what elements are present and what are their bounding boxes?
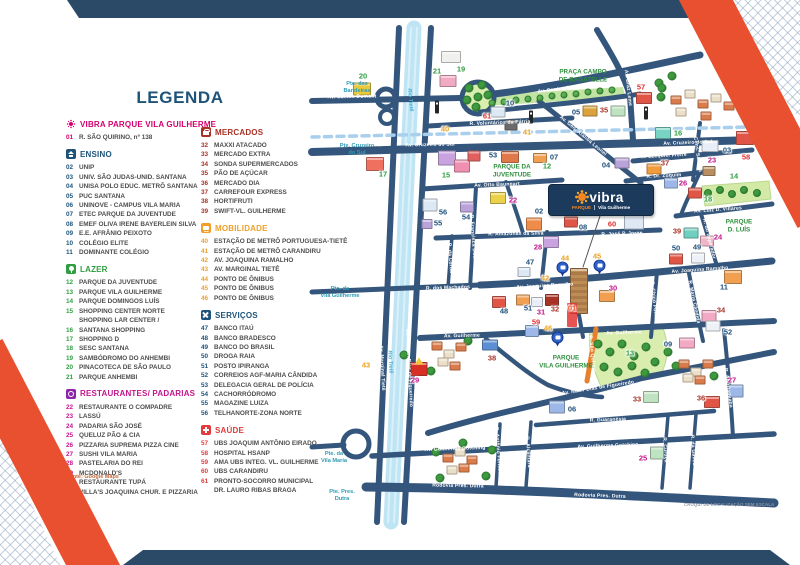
road-label: Av. Guilherme Gotching <box>424 445 485 453</box>
tree-icon <box>484 91 493 100</box>
legend-item-label: PONTO DE ÔNIBUS <box>214 284 274 293</box>
legend-item-label: HORTIFRUTI <box>214 197 253 206</box>
building-icon <box>501 151 519 163</box>
map-marker-20: 20 <box>359 72 367 81</box>
map-marker-45: 45 <box>593 252 601 261</box>
legend-item-label: QUELUZ PÃO & CIA <box>79 431 140 440</box>
legend-item-label: COLÉGIO ELITE <box>79 239 128 248</box>
tree-icon <box>657 93 666 102</box>
map-marker-37: 37 <box>661 159 669 168</box>
map-marker-19: 19 <box>457 65 465 74</box>
legend-item-number: 01 <box>66 133 79 142</box>
road-label: Av. Guilherme <box>444 333 480 340</box>
road-label: R. Alcântara <box>524 436 532 468</box>
map-marker-16: 16 <box>674 129 682 138</box>
legend-item-label: AV. JOAQUINA RAMALHO <box>214 256 293 265</box>
legend-item-number: 47 <box>201 324 214 333</box>
legend-item-number: 55 <box>201 399 214 408</box>
park-label: PARQUE VILA GUILHERME <box>539 355 593 370</box>
legend-item-label: BANCO BRADESCO <box>214 334 276 343</box>
legend-item-number: 22 <box>66 403 79 412</box>
legend-item-label: AV. MARGINAL TIETÊ <box>214 265 280 274</box>
legend-item-number: 38 <box>201 197 214 206</box>
tree-icon <box>597 88 604 95</box>
map-marker-28: 28 <box>534 243 542 252</box>
legend-item-number: 50 <box>201 352 214 361</box>
legend-item-label: E.E. AFRÂNIO PEIXOTO <box>79 229 152 238</box>
legend-item-number: 02 <box>66 163 79 172</box>
map-scale-note: CROQUI DE LOCALIZAÇÃO SEM ESCALA <box>684 502 774 507</box>
legend-item: 60UBS CARANDIRU <box>201 467 351 476</box>
map-marker-31: 31 <box>537 308 545 317</box>
legend-item-label: PUC SANTANA <box>79 192 125 201</box>
road-label: R. dos Machados <box>426 284 470 292</box>
building-icon <box>636 92 652 104</box>
tree-icon <box>716 186 724 194</box>
building-icon <box>518 267 531 277</box>
legend-item-number: 11 <box>66 248 79 257</box>
building-icon <box>543 236 559 248</box>
house-icon <box>432 342 443 351</box>
house-icon <box>711 94 722 103</box>
map-marker-26: 26 <box>679 179 687 188</box>
legend-item-label: R. SÃO QUIRINO, nº 138 <box>79 133 152 142</box>
map-marker-27: 27 <box>728 376 736 385</box>
legend-item: 50DROGA RAIA <box>201 352 351 361</box>
legend-item-label: PRONTO-SOCORRO MUNICIPAL <box>214 477 313 486</box>
tree-icon <box>664 348 673 357</box>
legend-item-label: AMA UBS INTEG. VL. GUILHERME <box>214 458 319 467</box>
legend-item-number: 09 <box>66 229 79 238</box>
legend-item: 59AMA UBS INTEG. VL. GUILHERME <box>201 458 351 467</box>
legend-item-label: PONTO DE ÔNIBUS <box>214 275 274 284</box>
map-marker-32: 32 <box>551 305 559 314</box>
legend-item-number: 18 <box>66 344 79 353</box>
legend-section-title: MOBILIDADE <box>215 224 268 233</box>
legend-item: 46PONTO DE ÔNIBUS <box>201 294 351 303</box>
map-marker-54: 54 <box>462 213 470 222</box>
legend-item-number: 42 <box>201 256 214 265</box>
legend-item-number: 20 <box>66 363 79 372</box>
map-marker-11: 11 <box>720 283 728 292</box>
legend-item-label: PARQUE ANHEMBI <box>79 373 137 382</box>
bus-stop-icon <box>594 260 605 275</box>
tree-icon <box>585 89 592 96</box>
tree-icon <box>463 96 472 105</box>
legend-section-saude: SAÚDE57UBS JOAQUIM ANTÔNIO EIRADO58HOSPI… <box>201 425 351 495</box>
legend-item-number: 07 <box>66 210 79 219</box>
legend-item: 34SONDA SUPERMERCADOS <box>201 160 351 169</box>
building-icon <box>583 106 598 117</box>
tree-icon <box>728 190 736 198</box>
legend-item-label: RESTAURANTE O COMPADRE <box>79 403 172 412</box>
map-marker-57: 57 <box>637 83 645 92</box>
legend-item-number: 58 <box>201 449 214 458</box>
building-icon <box>526 218 542 231</box>
legend-item-number: 39 <box>201 207 214 216</box>
legend-item-label: PÃO DE AÇÚCAR <box>214 169 268 178</box>
legend-item-label: SESC SANTANA <box>79 344 129 353</box>
legend-item-label: PARQUE VILA GUILHERME <box>79 288 162 297</box>
road-label: Av. Marginal Tietê <box>378 345 386 391</box>
building-icon <box>684 228 699 239</box>
legend-item-number: 08 <box>66 220 79 229</box>
legend-item-label: UNISA POLO EDUC. METRÔ SANTANA <box>79 182 198 191</box>
legend-item-number: 52 <box>201 371 214 380</box>
vibra-sub-parque: PARQUE <box>572 205 595 210</box>
legend-section-heading: SERVIÇOS <box>201 310 351 320</box>
legend-item-label: DELEGACIA GERAL DE POLÍCIA <box>214 381 314 390</box>
legend-item-number: 26 <box>66 441 79 450</box>
tree-icon <box>537 95 544 102</box>
legend-item-label: CARREFOUR EXPRESS <box>214 188 287 197</box>
map-marker-44: 44 <box>561 254 569 263</box>
house-icon <box>698 100 709 109</box>
legend-item-label: CACHORRÓDROMO <box>214 390 276 399</box>
legend-item-number: 27 <box>66 450 79 459</box>
tree-icon <box>642 343 651 352</box>
tree-icon <box>609 87 616 94</box>
legend-item: 61PRONTO-SOCORRO MUNICIPAL <box>201 477 351 486</box>
map-marker-01: 01 <box>568 304 576 313</box>
legend-section-title: ENSINO <box>80 150 112 159</box>
building-icon <box>422 219 433 229</box>
road-label: Av. Joaquina Ramalho <box>671 265 728 275</box>
house-icon <box>676 108 687 117</box>
legend-item-number: 14 <box>66 297 79 306</box>
bus-stop-icon <box>552 332 563 347</box>
map-marker-33: 33 <box>633 395 641 404</box>
road-label: Rodovia Pres. Dutra <box>574 492 626 500</box>
legend-item-continuation: DR. LAURO RIBAS BRAGA <box>201 486 351 495</box>
legend-item-label: PINACOTECA DE SÃO PAULO <box>79 363 171 372</box>
legend-item-number: 48 <box>201 334 214 343</box>
legend-item: 45PONTO DE ÔNIBUS <box>201 284 351 293</box>
health-cross-icon <box>201 425 211 435</box>
tree-icon <box>525 96 532 103</box>
map-marker-40: 40 <box>441 125 449 134</box>
building-icon <box>703 166 716 176</box>
road-label: Av. Luiz D. Villares <box>694 205 742 214</box>
map-marker-42: 42 <box>541 274 549 283</box>
tree-icon <box>614 368 623 377</box>
road-label: R. José P. Jorge <box>601 230 643 237</box>
legend-item-label: UBS CARANDIRU <box>214 467 268 476</box>
map-marker-15: 15 <box>442 171 450 180</box>
legend-item-number: 36 <box>201 179 214 188</box>
park-label: PARQUE DA JUVENTUDE <box>493 164 531 179</box>
legend-column-right: MERCADOS32MAXXI ATACADO33MERCADO EXTRA34… <box>201 127 351 496</box>
legend-item: 54CACHORRÓDROMO <box>201 390 351 399</box>
map-marker-02: 02 <box>535 207 543 216</box>
road-label: Av. Gen. Ataliba Leonel <box>558 115 608 158</box>
tree-icon <box>474 93 483 102</box>
map-marker-53: 53 <box>489 151 497 160</box>
house-icon <box>701 112 712 121</box>
tree-icon <box>594 340 603 349</box>
legend-item-number: 46 <box>201 294 214 303</box>
legend-item-label: PARQUE DOMINGOS LUÍS <box>79 297 159 306</box>
metro-station-icon <box>435 101 439 114</box>
legend-item-number: 06 <box>66 201 79 210</box>
legend-item-label: PASTELARIA DO REI <box>79 459 143 468</box>
road-label: Av. Guilherme Gotching <box>577 442 638 450</box>
map-marker-08: 08 <box>579 223 587 232</box>
legend-item-label: ESTAÇÃO DE METRÔ CARANDIRU <box>214 247 321 256</box>
legend-item-label: HOSPITAL HSANP <box>214 449 270 458</box>
legend-item-label: SHOPPING LAR CENTER / <box>79 316 159 325</box>
map-marker-05: 05 <box>572 108 580 117</box>
legend-item-number: 34 <box>201 160 214 169</box>
map-marker-38: 38 <box>488 354 496 363</box>
legend-item-number: 17 <box>66 335 79 344</box>
legend-item: 43AV. MARGINAL TIETÊ <box>201 265 351 274</box>
legend-item-number: 24 <box>66 422 79 431</box>
legend-item-label: UNIP <box>79 163 94 172</box>
legend-item-number: 04 <box>66 182 79 191</box>
legend-item-label: LASSÚ <box>79 412 101 421</box>
road-label: Rodovia Pres. Dutra <box>432 483 484 490</box>
vibra-brand: vibra <box>589 191 623 204</box>
road-label: R. Chico Pontes <box>649 281 659 323</box>
map-marker-07: 07 <box>550 153 558 162</box>
map-marker-46: 46 <box>544 324 552 333</box>
building-icon <box>611 106 626 117</box>
tree-icon <box>753 189 761 197</box>
legend-item: 47BANCO ITAÚ <box>201 324 351 333</box>
legend-item-number: 40 <box>201 237 214 246</box>
building-icon <box>664 178 678 189</box>
legend-item-label: UNINOVE - CAMPUS VILA MARIA <box>79 201 180 210</box>
legend-item-label: BANCO ITAÚ <box>214 324 254 333</box>
legend-item-number: 15 <box>66 307 79 316</box>
road-label: R. Voluntários da Pátria <box>469 119 530 127</box>
building-icon <box>549 401 565 414</box>
legend-item-label: SANTANA SHOPPING <box>79 326 145 335</box>
house-icon <box>683 374 694 383</box>
legend-item: 32MAXXI ATACADO <box>201 141 351 150</box>
legend-item-number: 45 <box>201 284 214 293</box>
map-marker-43: 43 <box>362 361 370 370</box>
house-icon <box>447 466 458 475</box>
legend-item: 42AV. JOAQUINA RAMALHO <box>201 256 351 265</box>
legend-item-label: SHOPPING D <box>79 335 119 344</box>
legend-section-mobilidade: MOBILIDADE40ESTAÇÃO DE METRÔ PORTUGUESA-… <box>201 223 351 303</box>
map-marker-04: 04 <box>602 161 610 170</box>
tree-icon <box>561 92 568 99</box>
tree-icon <box>478 81 487 90</box>
road-label: R. Amazonas da Silva <box>488 231 544 238</box>
vibra-map-logo: vibra PARQUE Vila Guilherme <box>548 184 654 216</box>
vibra-sun-icon <box>66 119 76 129</box>
map-marker-39: 39 <box>673 227 681 236</box>
legend-item: 49BANCO DO BRASIL <box>201 343 351 352</box>
map-marker-24: 24 <box>714 233 722 242</box>
brochure-page: LEGENDA VIBRA PARQUE VILA GUILHERME01R. … <box>0 0 800 565</box>
legend-item-number: 05 <box>66 192 79 201</box>
legend-section-heading: MOBILIDADE <box>201 223 351 233</box>
legend-item-number: 33 <box>201 150 214 159</box>
legend-item: 48BANCO BRADESCO <box>201 334 351 343</box>
tree-icon <box>618 340 627 349</box>
map-marker-22: 22 <box>509 196 517 205</box>
tree-icon <box>606 348 615 357</box>
road-label: R. Maria Cândida <box>687 280 702 324</box>
legend-item-number: 25 <box>66 431 79 440</box>
map-marker-13: 13 <box>626 349 634 358</box>
legend-section-title: MERCADOS <box>215 128 263 137</box>
legend-item: 57UBS JOAQUIM ANTÔNIO EIRADO <box>201 439 351 448</box>
building-icon <box>643 391 659 403</box>
road-label: R. Antônio Fonseca <box>493 427 502 478</box>
legend-section-mercados: MERCADOS32MAXXI ATACADO33MERCADO EXTRA34… <box>201 127 351 216</box>
legend-item-label: CORREIOS AGF-MARIA CÂNDIDA <box>214 371 317 380</box>
map-marker-10: 10 <box>506 99 514 108</box>
vibra-sub-vila-guilherme: Vila Guilherme <box>598 205 630 210</box>
building-icon <box>679 338 695 349</box>
tree-icon <box>600 363 609 372</box>
legend-section-heading: SAÚDE <box>201 425 351 435</box>
legend-item-number: 44 <box>201 275 214 284</box>
map-marker-58: 58 <box>742 153 750 162</box>
road-label: R. Curuçá <box>661 437 669 463</box>
legend-item-number: 10 <box>66 239 79 248</box>
legend-item: 44PONTO DE ÔNIBUS <box>201 275 351 284</box>
tree-icon <box>628 362 637 371</box>
map-marker-29: 29 <box>411 376 419 385</box>
park-label: PRAÇA CAMPO DE BAGATELLE <box>559 69 608 84</box>
legend-item-label: MAGAZINE LUIZA <box>214 399 269 408</box>
map-marker-21: 21 <box>433 67 441 76</box>
legend-item-label: DROGA RAIA <box>214 352 255 361</box>
legend-item-number: 57 <box>201 439 214 448</box>
restaurant-icon <box>66 389 76 399</box>
legend-item-number: 60 <box>201 467 214 476</box>
legend-item-label: ETEC PARQUE DA JUVENTUDE <box>79 210 176 219</box>
legend-item: 40ESTAÇÃO DE METRÔ PORTUGUESA-TIETÊ <box>201 237 351 246</box>
tree-icon <box>651 358 660 367</box>
map-marker-09: 09 <box>664 340 672 349</box>
river-label: Rio Tietê <box>406 88 414 112</box>
road-label: Av. Nadir Dias de Figueiredo <box>561 379 634 396</box>
legend-item-label: VILLA'S JOAQUINA CHUR. E PIZZARIA <box>79 488 198 497</box>
building-icon <box>669 254 683 265</box>
house-icon <box>456 343 467 352</box>
map-marker-17: 17 <box>379 170 387 179</box>
legend-item-label: DOMINANTE COLÉGIO <box>79 248 149 257</box>
legend-item-number: 23 <box>66 412 79 421</box>
house-icon <box>671 96 682 105</box>
road-label: R. Francisca Duarte <box>468 214 478 265</box>
map-marker-59: 59 <box>532 318 540 327</box>
road-label: Av. Guilherme <box>606 329 642 336</box>
legend-item-label: ESTAÇÃO DE METRÔ PORTUGUESA-TIETÊ <box>214 237 347 246</box>
map-marker-23: 23 <box>708 156 716 165</box>
legend-item-label: PARQUE DA JUVENTUDE <box>79 278 157 287</box>
legend-item: 41ESTAÇÃO DE METRÔ CARANDIRU <box>201 247 351 256</box>
legend-item-label: MERCADO EXTRA <box>214 150 270 159</box>
map-marker-55: 55 <box>434 219 442 228</box>
map-marker-36: 36 <box>697 394 705 403</box>
legend-item: 52CORREIOS AGF-MARIA CÂNDIDA <box>201 371 351 380</box>
map-marker-61: 61 <box>483 112 491 121</box>
legend-item: 39SWIFT-VL. GUILHERME <box>201 207 351 216</box>
building-icon <box>688 188 702 199</box>
map-marker-49: 49 <box>693 243 701 252</box>
building-icon <box>491 107 506 118</box>
house-icon <box>459 464 470 473</box>
legend-item: 51POSTO IPIRANGA <box>201 362 351 371</box>
map-marker-41: 41 <box>523 128 531 137</box>
house-icon <box>685 90 696 99</box>
legend-item: 53DELEGACIA GERAL DE POLÍCIA <box>201 381 351 390</box>
building-icon <box>704 396 720 408</box>
legend-item-number: 32 <box>201 141 214 150</box>
legend-section-title: VIBRA PARQUE VILA GUILHERME <box>80 120 216 129</box>
map-marker-52: 52 <box>724 328 732 337</box>
house-icon <box>695 376 706 385</box>
legend-item-number: 49 <box>201 343 214 352</box>
legend-item-number: 35 <box>201 169 214 178</box>
legend-item-number: 59 <box>201 458 214 467</box>
building-icon <box>706 321 721 332</box>
legend-item: 58HOSPITAL HSANP <box>201 449 351 458</box>
map-marker-47: 47 <box>526 258 534 267</box>
legend-item-number: 43 <box>201 265 214 274</box>
map-marker-50: 50 <box>672 244 680 253</box>
legend-item-label: PIZZARIA SUPREMA PIZZA CINE <box>79 441 179 450</box>
building-icon <box>525 325 539 337</box>
map-marker-34: 34 <box>717 306 725 315</box>
building-icon <box>440 75 457 87</box>
building-icon <box>624 215 644 230</box>
tree-icon <box>482 472 491 481</box>
map-marker-30: 30 <box>609 284 617 293</box>
road-label: R. Guaranésia <box>590 416 626 423</box>
map-marker-06: 06 <box>568 405 576 414</box>
legend-section-title: LAZER <box>80 265 108 274</box>
building-icon <box>460 202 474 213</box>
road-label: Av. Braz Leme <box>623 70 633 107</box>
legend-item-number: 54 <box>201 390 214 399</box>
map-marker-56: 56 <box>439 208 447 217</box>
legend-item-number: 16 <box>66 326 79 335</box>
legend-item-label: DR. LAURO RIBAS BRAGA <box>214 486 296 495</box>
legend-item-number: 61 <box>201 477 214 486</box>
tree-icon <box>66 264 76 274</box>
building-icon <box>415 358 424 365</box>
legend-item: 56TELHANORTE-ZONA NORTE <box>201 409 351 418</box>
bus-stop-icon <box>557 262 568 277</box>
park-label: PARQUE D. LUÍS <box>726 219 752 234</box>
legend-item: 55MAGAZINE LUIZA <box>201 399 351 408</box>
vibra-sun-icon <box>578 193 586 201</box>
legend-item-label: EMEF OLIVA IRENE BAYERLEIN SILVA <box>79 220 196 229</box>
legend-item-number: 53 <box>201 381 214 390</box>
map-marker-12: 12 <box>543 162 551 171</box>
legend-item-number: 03 <box>66 173 79 182</box>
legend-item-label: UNIV. SÃO JUDAS-UNID. SANTANA <box>79 173 187 182</box>
legend-item-label: SONDA SUPERMERCADOS <box>214 160 298 169</box>
river-label: Rio Tietê <box>386 350 393 373</box>
house-icon <box>703 360 714 369</box>
tree-icon <box>427 367 436 376</box>
legend-item-number: 41 <box>201 247 214 256</box>
market-basket-icon <box>201 127 211 137</box>
legend-item-label: UBS JOAQUIM ANTÔNIO EIRADO <box>214 439 317 448</box>
road-label: Av. Otto Baungart <box>474 181 520 189</box>
tree-icon <box>489 100 496 107</box>
